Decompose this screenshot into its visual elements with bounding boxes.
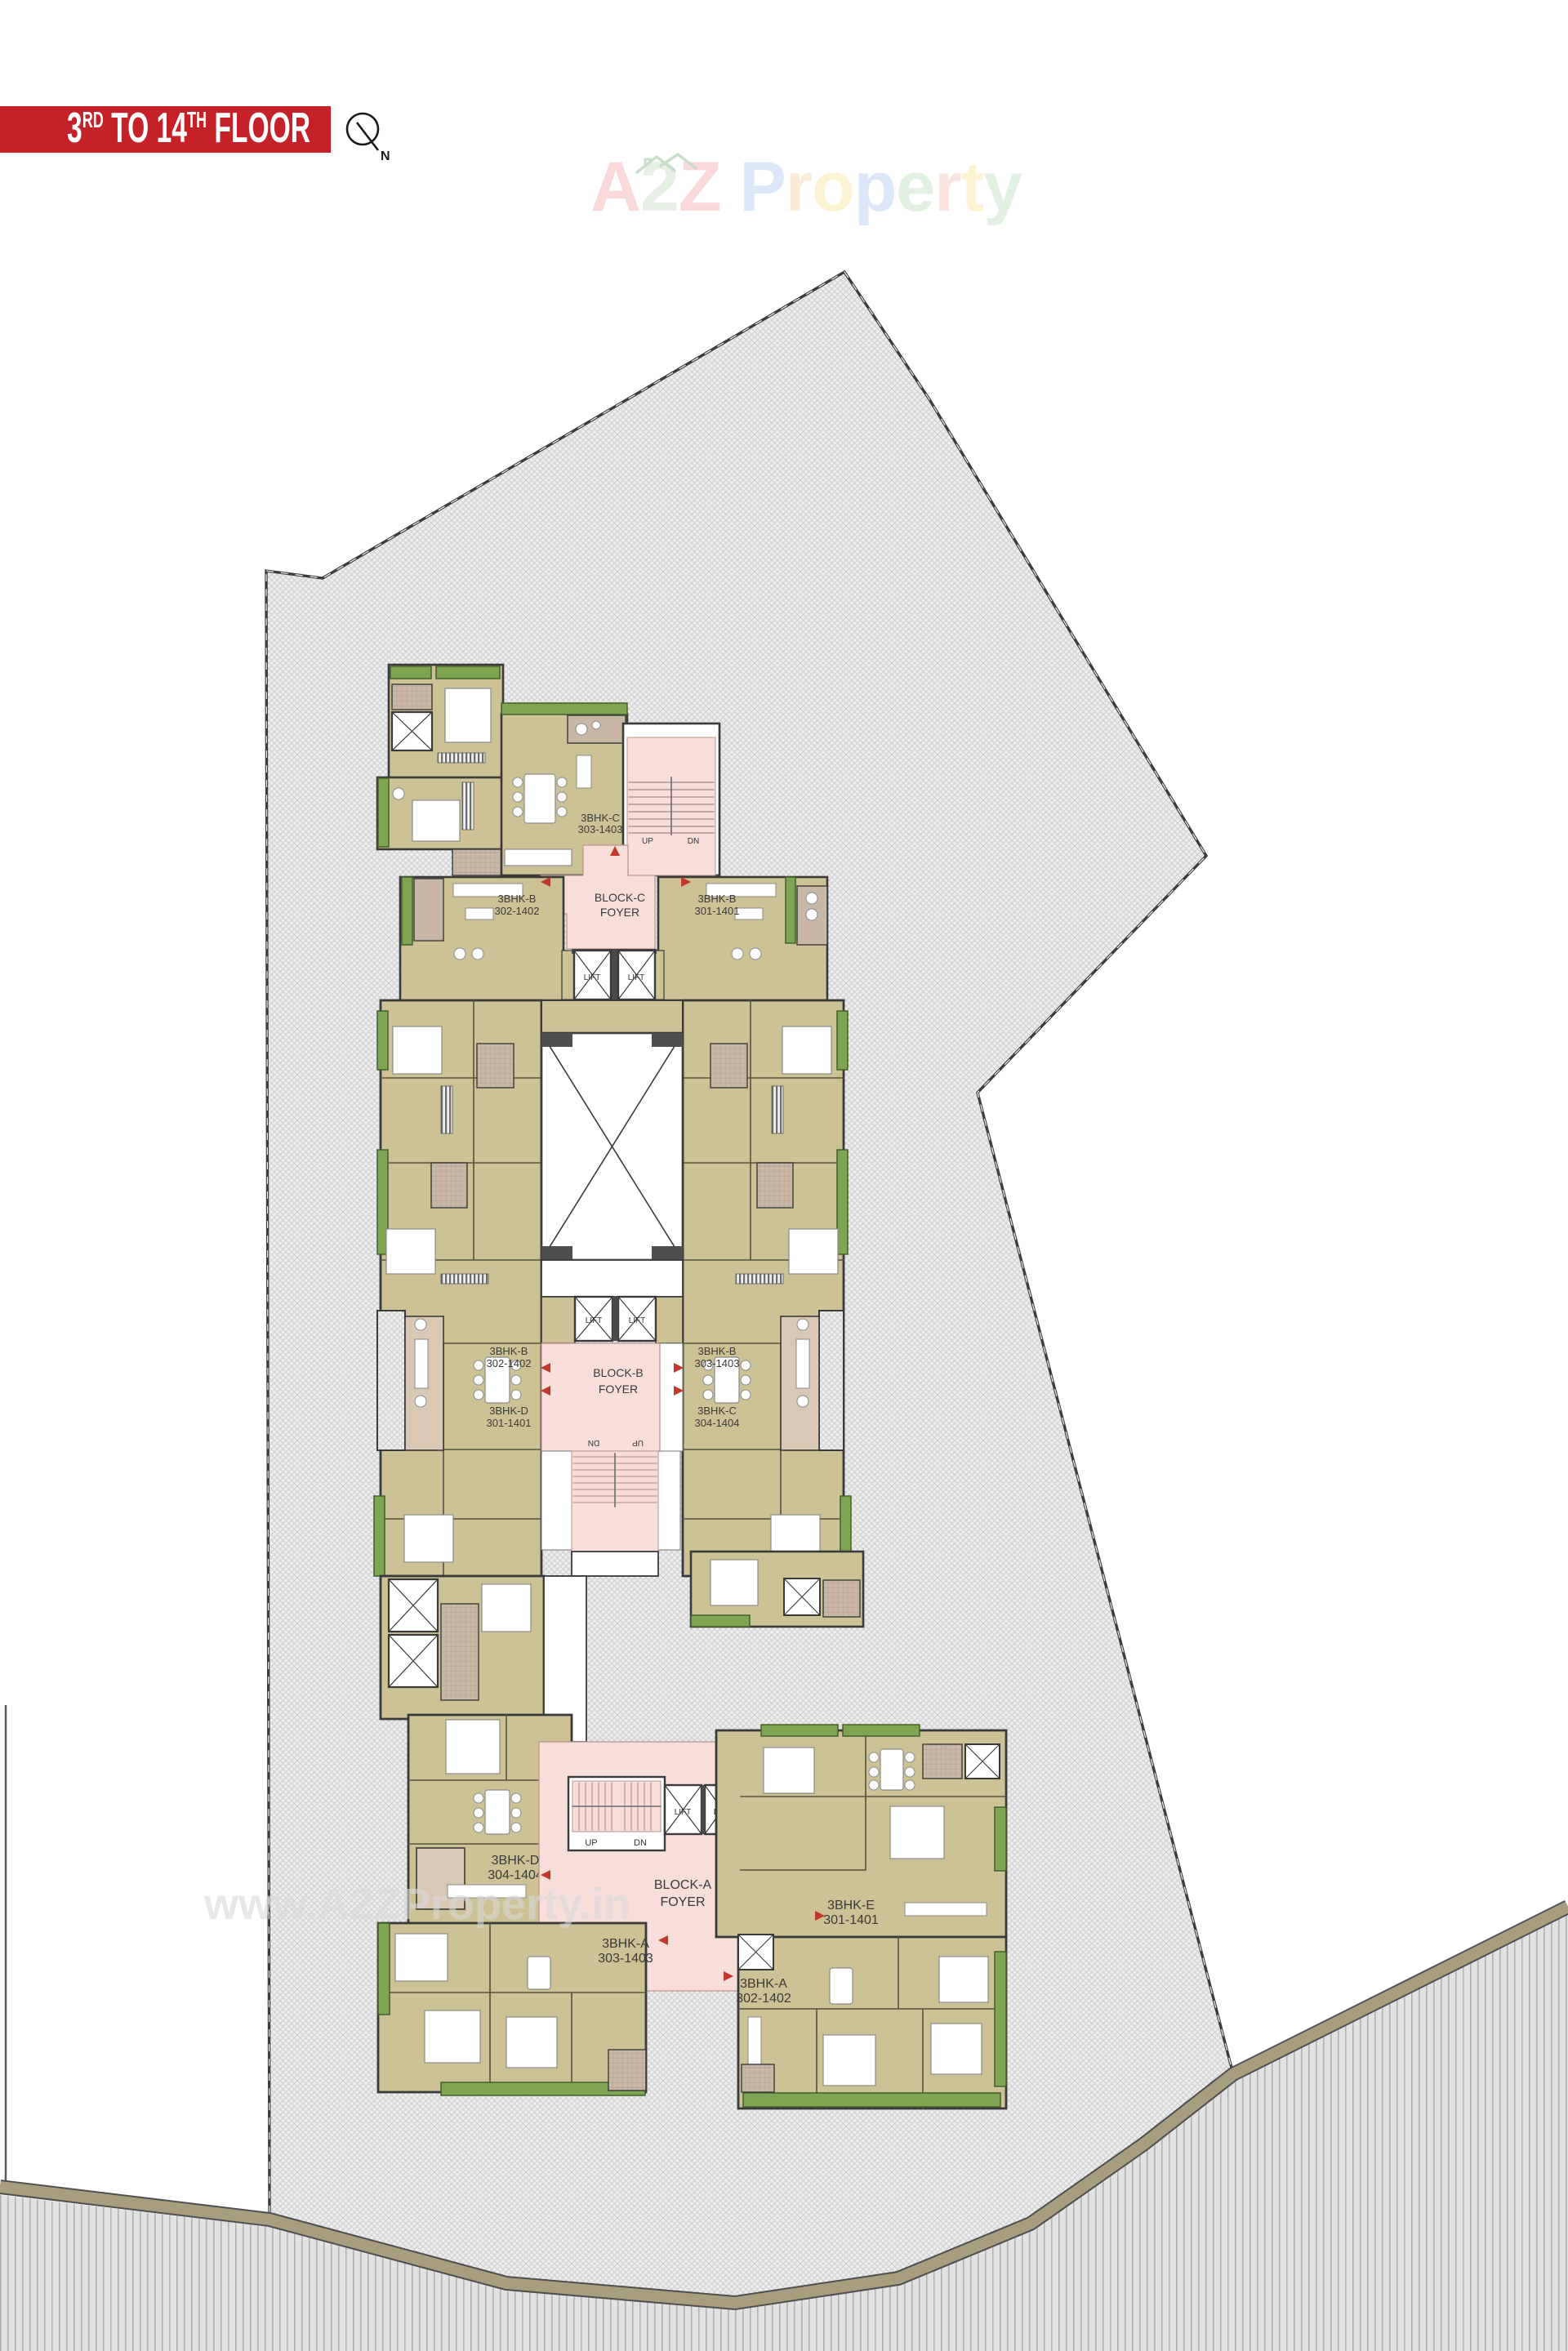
svg-text:302-1402: 302-1402 (736, 1992, 791, 2006)
svg-text:3BHK-A: 3BHK-A (740, 1977, 787, 1991)
svg-text:3BHK-C: 3BHK-C (581, 812, 620, 824)
svg-text:3BHK-B: 3BHK-B (498, 893, 537, 905)
svg-text:302-1402: 302-1402 (495, 905, 540, 917)
svg-text:3BHK-A: 3BHK-A (602, 1937, 649, 1951)
svg-text:DN: DN (634, 1838, 647, 1848)
svg-text:UP: UP (585, 1838, 597, 1848)
svg-text:LIFT: LIFT (628, 973, 645, 982)
svg-text:3BHK-D: 3BHK-D (489, 1405, 528, 1417)
svg-text:304-1404: 304-1404 (695, 1417, 740, 1429)
svg-text:3BHK-D: 3BHK-D (492, 1854, 540, 1868)
svg-text:LIFT: LIFT (675, 1808, 692, 1817)
svg-text:www.A2ZProperty.in: www.A2ZProperty.in (203, 1880, 630, 1929)
svg-text:LIFT: LIFT (586, 1316, 603, 1325)
svg-text:DN: DN (588, 1438, 599, 1447)
svg-text:303-1403: 303-1403 (598, 1952, 653, 1966)
svg-text:LIFT: LIFT (629, 1316, 646, 1325)
svg-text:BLOCK-A: BLOCK-A (654, 1878, 712, 1892)
svg-text:FOYER: FOYER (599, 1383, 638, 1396)
svg-text:N: N (381, 149, 390, 163)
svg-text:303-1403: 303-1403 (695, 1357, 740, 1369)
svg-text:301-1401: 301-1401 (695, 905, 740, 917)
svg-text:UP: UP (632, 1438, 644, 1447)
svg-text:3BHK-B: 3BHK-B (490, 1345, 528, 1357)
svg-text:UP: UP (642, 837, 653, 846)
svg-text:FOYER: FOYER (660, 1895, 705, 1909)
svg-text:3BHK-B: 3BHK-B (698, 893, 737, 905)
svg-text:3BHK-E: 3BHK-E (827, 1899, 875, 1912)
svg-text:301-1401: 301-1401 (823, 1913, 879, 1927)
svg-text:3BHK-B: 3BHK-B (698, 1345, 737, 1357)
svg-text:LIFT: LIFT (584, 973, 601, 982)
svg-text:BLOCK-C: BLOCK-C (595, 891, 645, 904)
svg-text:BLOCK-B: BLOCK-B (593, 1366, 643, 1379)
svg-text:DN: DN (688, 837, 699, 846)
svg-text:3BHK-C: 3BHK-C (697, 1405, 737, 1417)
svg-text:FOYER: FOYER (600, 906, 639, 919)
svg-text:302-1402: 302-1402 (487, 1357, 532, 1369)
svg-text:301-1401: 301-1401 (487, 1417, 532, 1429)
svg-text:303-1403: 303-1403 (578, 823, 623, 835)
